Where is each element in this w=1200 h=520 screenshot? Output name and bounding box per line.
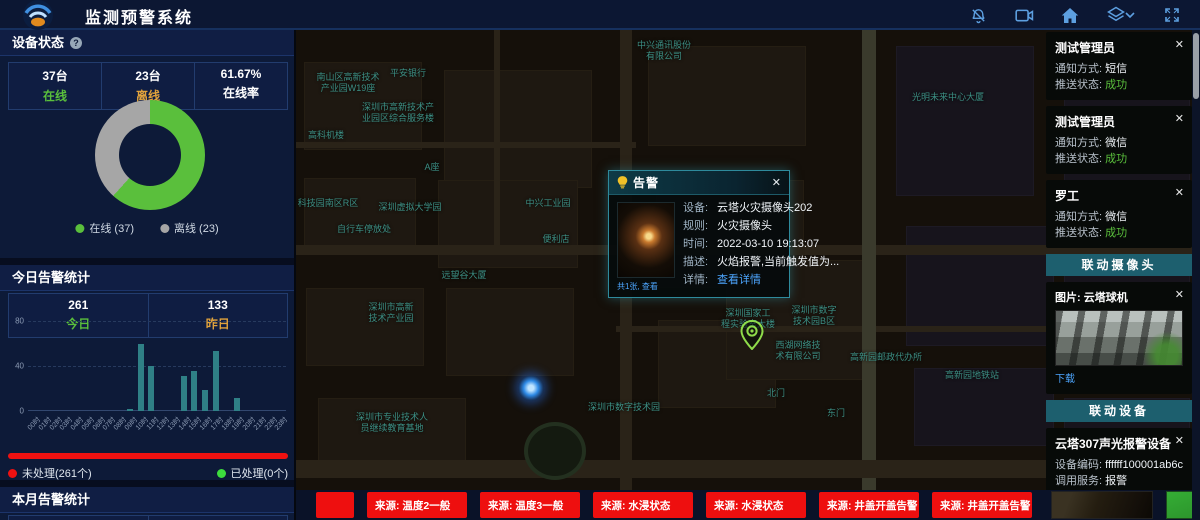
popup-field-label: 详情:	[683, 274, 717, 287]
legend-item: 已处理(0个)	[217, 465, 288, 481]
month-alarm-stats: 7631146	[8, 515, 288, 520]
y-tick-label: 40	[15, 362, 24, 371]
device-status-header: 设备状态?	[0, 30, 294, 56]
linked-camera-section-header[interactable]: 联动摄像头	[1046, 254, 1192, 276]
legend-dot	[160, 224, 169, 233]
alert-source-tile[interactable]	[316, 492, 354, 518]
map-label: 西湖网络技 术有限公司	[775, 340, 820, 362]
map-label: 远望谷大厦	[441, 270, 486, 281]
camera-snapshot-image[interactable]	[1055, 310, 1183, 366]
legend-dot	[217, 469, 226, 478]
map-label: 高新园地铁站	[945, 370, 999, 381]
map-label: 平安银行	[390, 68, 426, 79]
popup-field-value: 2022-03-10 19:13:07	[717, 238, 819, 251]
bar	[127, 409, 133, 411]
map-label: 深圳市高新技术产 业园区综合服务楼	[362, 102, 434, 124]
popup-field-label: 设备:	[683, 202, 717, 215]
alarm-snapshot-caption[interactable]: 共1张, 查看	[617, 281, 675, 292]
close-icon[interactable]: ✕	[1175, 38, 1184, 51]
map-label: 自行车停放处	[337, 224, 391, 235]
card-row: 通知方式: 短信	[1055, 61, 1183, 77]
alert-source-tile[interactable]: 来源: 温度3一般	[480, 492, 580, 518]
close-icon[interactable]: ✕	[1175, 288, 1184, 301]
bar	[213, 351, 219, 411]
stat-cell: 763	[9, 516, 149, 520]
card-row: 推送状态: 成功	[1055, 225, 1183, 241]
map-label: 南山区高新技术 产业园W19座	[316, 72, 379, 94]
bell-off-icon[interactable]	[968, 5, 988, 25]
stat-cell: 1146	[149, 516, 288, 520]
app-logo-icon	[22, 0, 54, 31]
layers-icon[interactable]	[1106, 5, 1136, 25]
legend-dot	[75, 224, 84, 233]
progress-legend: 未处理(261个)已处理(0个)	[8, 465, 288, 481]
card-row: 通知方式: 微信	[1055, 209, 1183, 225]
bottom-alert-strip: 来源: 温度2一般来源: 温度3一般来源: 水浸状态来源: 水浸状态来源: 井盖…	[296, 490, 1200, 520]
donut-legend: 在线 (37)离线 (23)	[75, 220, 218, 236]
vertical-scrollbar[interactable]	[1192, 30, 1200, 520]
alert-tiles: 来源: 温度2一般来源: 温度3一般来源: 水浸状态来源: 水浸状态来源: 井盖…	[316, 492, 1032, 518]
map-label: 科技园南区R区	[298, 198, 359, 209]
device-cards: 云塔307声光报警设备✕设备编码: ffffff100001ab6c调用服务: …	[1046, 428, 1192, 490]
alarm-lamp-icon	[617, 176, 628, 189]
month-alarms-title: 本月告警统计	[12, 492, 90, 507]
bar	[202, 390, 208, 411]
today-alarms-title: 今日告警统计	[12, 270, 90, 285]
bar	[138, 344, 144, 412]
linked-device-section-header[interactable]: 联动设备	[1046, 400, 1192, 422]
month-alarms-header: 本月告警统计	[0, 487, 294, 513]
popup-field-label: 时间:	[683, 238, 717, 251]
popup-field-label: 规则:	[683, 220, 717, 233]
alert-source-tile[interactable]: 来源: 温度2一般	[367, 492, 467, 518]
legend-item: 未处理(261个)	[8, 465, 92, 481]
download-link[interactable]: 下载	[1055, 370, 1075, 385]
alarm-snapshot-image[interactable]	[617, 202, 675, 278]
gridline	[28, 321, 286, 322]
notification-card: 测试管理员✕通知方式: 微信推送状态: 成功	[1046, 106, 1192, 174]
notification-card: 云塔307声光报警设备✕设备编码: ffffff100001ab6c调用服务: …	[1046, 428, 1192, 490]
x-axis	[28, 410, 286, 411]
map-label: 高新园邮政代办所	[850, 352, 922, 363]
map-road	[862, 30, 876, 490]
alert-source-tile[interactable]: 来源: 井盖开盖告警	[819, 492, 919, 518]
map-road	[296, 142, 636, 148]
linked-camera-card: 图片: 云塔球机 ✕ 下载	[1046, 282, 1192, 394]
location-pin-marker[interactable]	[740, 320, 764, 350]
map-building	[446, 288, 574, 376]
home-icon[interactable]	[1060, 5, 1080, 25]
popup-field-value: 云塔火灾摄像头202	[717, 202, 812, 215]
map-label: 光明未来中心大厦	[912, 92, 984, 103]
camera-card-title: 图片: 云塔球机	[1055, 289, 1183, 305]
map-label: A座	[424, 162, 439, 173]
left-sidebar: 设备状态? 37台在线23台离线61.67%在线率 在线 (37)离线 (23)…	[0, 30, 296, 520]
fullscreen-icon[interactable]	[1162, 5, 1182, 25]
popup-field-value: 火焰报警,当前触发值为...	[717, 256, 839, 269]
strip-thumbnail-dark[interactable]	[1051, 491, 1153, 519]
bar	[148, 366, 154, 411]
video-camera-icon[interactable]	[1014, 5, 1034, 25]
map-label: 东门	[827, 408, 845, 419]
notification-card: 罗工✕通知方式: 微信推送状态: 成功	[1046, 180, 1192, 248]
scrollbar-thumb[interactable]	[1193, 33, 1199, 99]
map-roundabout	[524, 422, 586, 480]
popup-field-row: 设备:云塔火灾摄像头202	[683, 202, 839, 215]
bar	[181, 376, 187, 411]
alarm-popup-title: 告警	[633, 174, 659, 191]
close-icon[interactable]: ✕	[1175, 186, 1184, 199]
popup-field-value: 火灾摄像头	[717, 220, 772, 233]
card-row: 推送状态: 成功	[1055, 77, 1183, 93]
app-title: 监测预警系统	[85, 4, 193, 28]
alarm-popup-body: 共1张, 查看 设备:云塔火灾摄像头202规则:火灾摄像头时间:2022-03-…	[609, 195, 789, 292]
alarm-popup: 告警 ✕ 共1张, 查看 设备:云塔火灾摄像头202规则:火灾摄像头时间:202…	[608, 170, 790, 298]
popup-field-row: 详情:查看详情	[683, 274, 839, 287]
card-row: 推送状态: 成功	[1055, 151, 1183, 167]
map-building	[444, 70, 592, 188]
map-label: 北门	[767, 388, 785, 399]
y-tick-label: 80	[15, 317, 24, 326]
device-status-donut-chart	[95, 100, 205, 210]
right-sidebar: 测试管理员✕通知方式: 短信推送状态: 成功测试管理员✕通知方式: 微信推送状态…	[1046, 32, 1192, 490]
notify-cards: 测试管理员✕通知方式: 短信推送状态: 成功测试管理员✕通知方式: 微信推送状态…	[1046, 32, 1192, 248]
map-building	[306, 288, 424, 366]
alarm-popup-fields: 设备:云塔火灾摄像头202规则:火灾摄像头时间:2022-03-10 19:13…	[683, 202, 839, 292]
card-row: 调用服务: 报警	[1055, 473, 1183, 489]
map-label: 中兴工业园	[525, 198, 570, 209]
card-row: 设备编码: ffffff100001ab6c	[1055, 457, 1183, 473]
alert-source-tile[interactable]: 来源: 水浸状态	[593, 492, 693, 518]
alarm-dot-marker[interactable]	[518, 375, 544, 401]
detail-link[interactable]: 查看详情	[717, 274, 761, 287]
popup-field-row: 描述:火焰报警,当前触发值为...	[683, 256, 839, 269]
legend-dot	[8, 469, 17, 478]
map-label: 深圳市专业技术人 员继续教育基地	[356, 412, 428, 434]
map-label: 深圳市高新 技术产业园	[368, 302, 413, 324]
help-icon[interactable]: ?	[70, 37, 82, 49]
map-label: 深圳市数字技术园	[588, 402, 660, 413]
hourly-alarm-bar-chart: 0408000时01时02时03时04时05时06时07时08时09时10时11…	[28, 321, 286, 411]
stat-cell: 37台在线	[9, 63, 102, 109]
popup-field-row: 时间:2022-03-10 19:13:07	[683, 238, 839, 251]
close-icon[interactable]: ✕	[1175, 434, 1184, 447]
map-label: 深圳虚拟大学园	[378, 202, 441, 213]
top-header: 监测预警系统	[0, 0, 1200, 30]
card-row: 通知方式: 微信	[1055, 135, 1183, 151]
popup-field-label: 描述:	[683, 256, 717, 269]
stat-cell: 61.67%在线率	[195, 63, 287, 109]
device-status-title: 设备状态	[12, 35, 64, 50]
map-road	[494, 30, 500, 250]
map-label: 中兴通讯股份 有限公司	[637, 40, 691, 62]
map-building	[304, 178, 416, 248]
close-icon[interactable]: ✕	[772, 176, 781, 189]
section-divider	[0, 258, 294, 265]
close-icon[interactable]: ✕	[1175, 112, 1184, 125]
map-label: 深圳市数字 技术园B区	[791, 305, 836, 327]
section-divider	[0, 480, 294, 487]
bar	[234, 398, 240, 412]
notification-card: 测试管理员✕通知方式: 短信推送状态: 成功	[1046, 32, 1192, 100]
unhandled-progress-bar	[8, 453, 288, 459]
legend-item: 在线 (37)	[75, 220, 134, 236]
alert-source-tile[interactable]: 来源: 井盖开盖告警	[932, 492, 1032, 518]
alert-source-tile[interactable]: 来源: 水浸状态	[706, 492, 806, 518]
header-icon-bar	[968, 0, 1182, 30]
legend-item: 离线 (23)	[160, 220, 219, 236]
map-label: 高科机楼	[308, 130, 344, 141]
alarm-popup-titlebar: 告警 ✕	[609, 171, 789, 195]
bar	[191, 371, 197, 412]
alarm-thumb-wrap: 共1张, 查看	[617, 202, 675, 292]
gridline	[28, 366, 286, 367]
map-building	[896, 46, 1034, 196]
today-alarms-header: 今日告警统计	[0, 265, 294, 291]
map-label: 便利店	[542, 234, 569, 245]
popup-field-row: 规则:火灾摄像头	[683, 220, 839, 233]
y-tick-label: 0	[20, 407, 24, 416]
